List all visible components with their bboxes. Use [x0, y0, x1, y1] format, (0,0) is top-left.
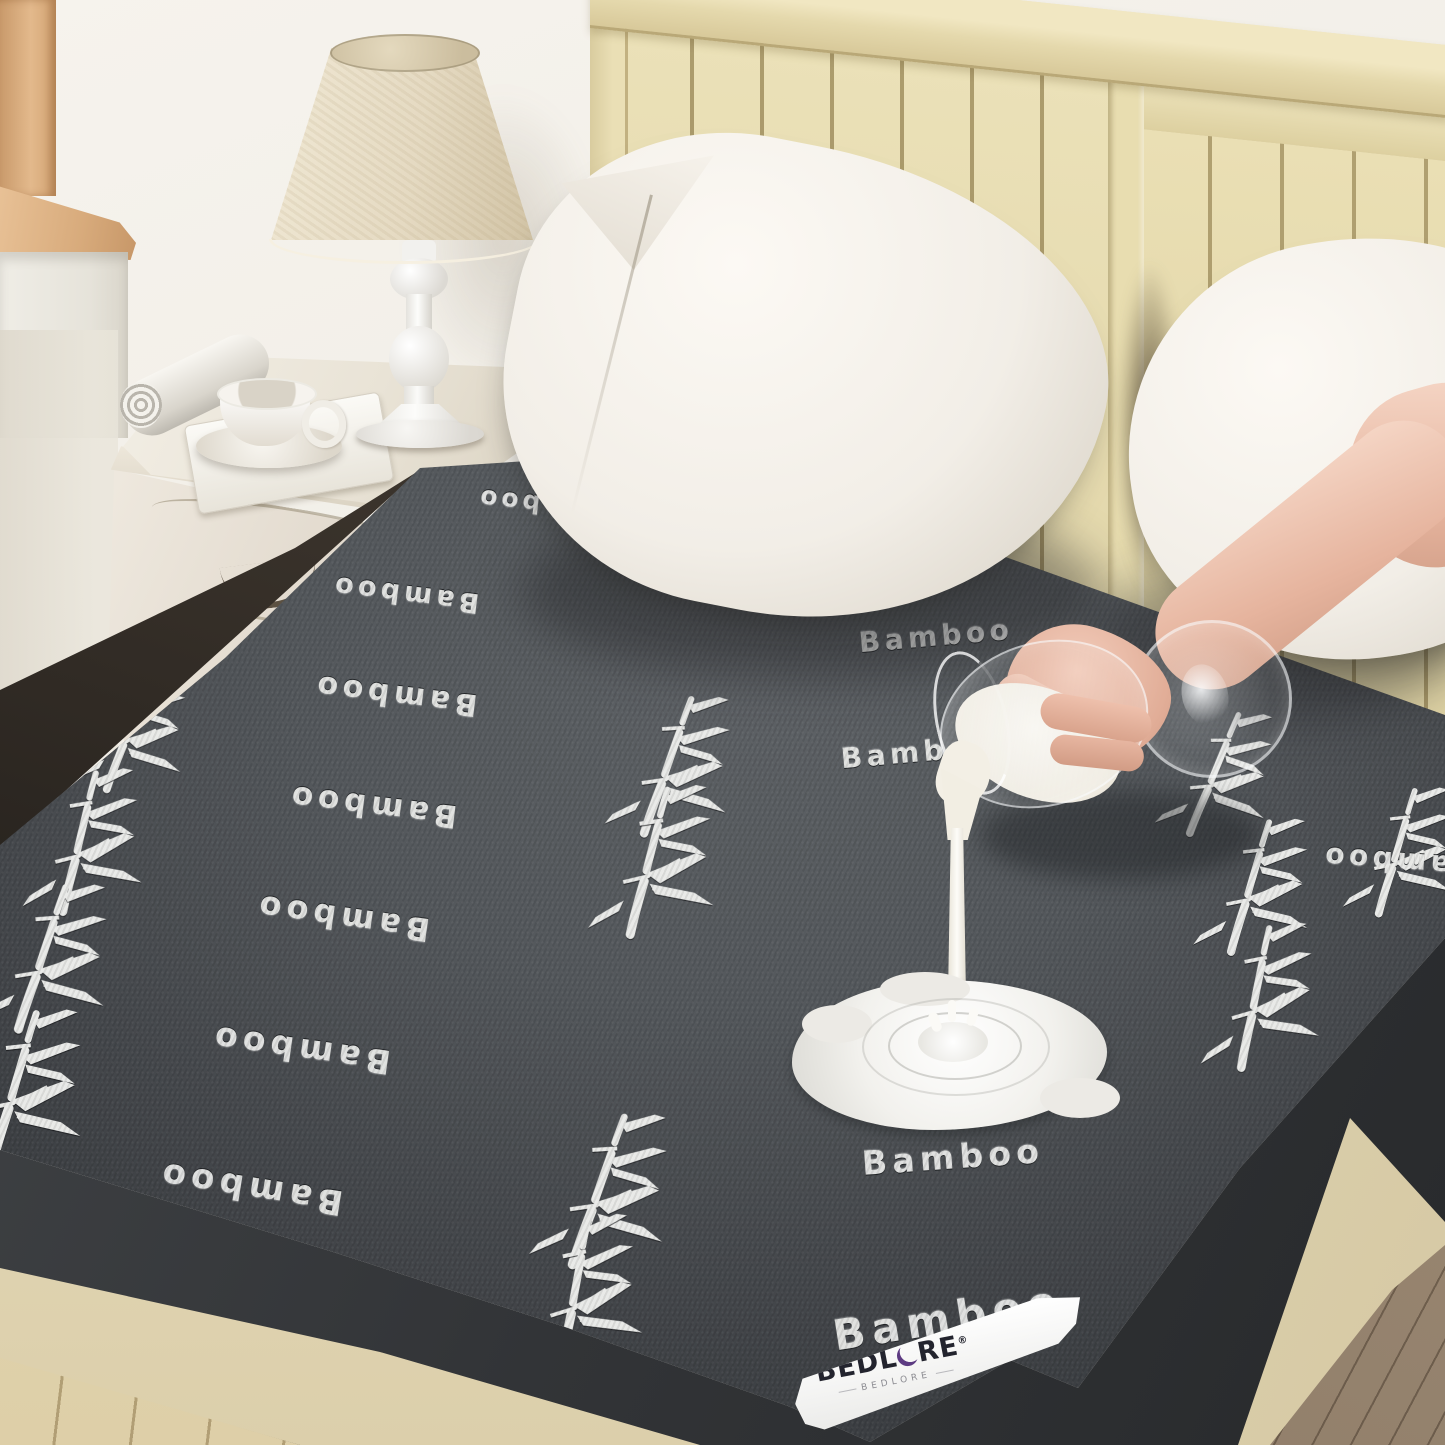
bamboo-plant-icon — [0, 881, 136, 1044]
window-sill — [0, 182, 136, 260]
lamp-shade — [271, 48, 533, 240]
registered-mark: ® — [957, 1334, 970, 1347]
bamboo-embroidery-text: Bamboo — [861, 1131, 1046, 1183]
bamboo-plant-icon — [1341, 788, 1445, 923]
milk-splash — [918, 1022, 988, 1062]
lamp-base-bulge — [389, 326, 449, 392]
bamboo-plant-icon — [601, 691, 759, 849]
bamboo-plant-icon — [525, 1108, 698, 1281]
bamboo-embroidery-text: Bamboo — [311, 668, 480, 723]
bamboo-embroidery-text: Bamboo — [252, 887, 433, 949]
puddle-edge — [802, 1005, 872, 1043]
bamboo-embroidery-text: Bamboo — [207, 1018, 393, 1082]
bamboo-embroidery-text: Bamboo — [1320, 840, 1445, 884]
bamboo-plant-icon — [581, 784, 744, 947]
lamp-shade-opening — [330, 34, 480, 72]
lamp-base-disc — [356, 420, 484, 448]
magazine-roll-spiral — [120, 382, 162, 428]
puddle-edge — [1040, 1078, 1120, 1118]
bamboo-embroidery-text: Bamboo — [285, 778, 460, 835]
product-photo-bamboo-mattress-protector: BambooBambooBambooBambooBambooBambooBamb… — [0, 0, 1445, 1445]
bamboo-plant-icon — [0, 1010, 111, 1175]
teacup-rim — [217, 378, 317, 410]
milk-droplet — [948, 1000, 956, 1022]
window-frame-plank — [0, 0, 56, 196]
bamboo-plant-icon — [1187, 919, 1350, 1082]
bamboo-embroidery-text: Bamboo — [329, 570, 481, 619]
